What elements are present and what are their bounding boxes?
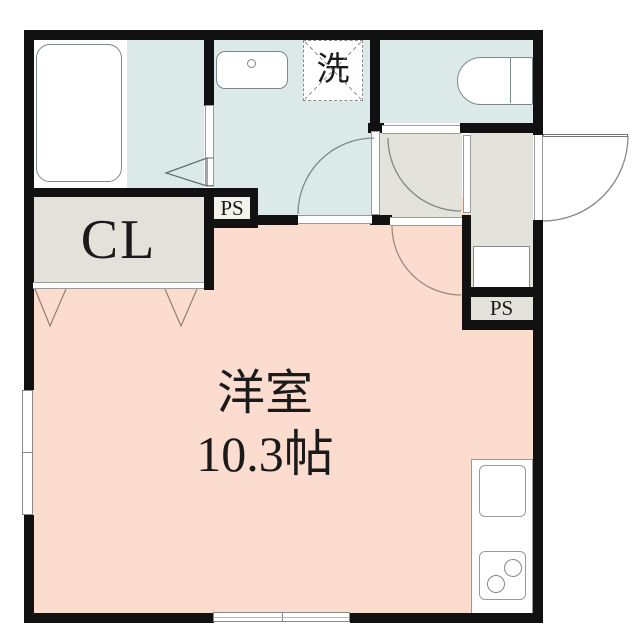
- main-room-door-opening: [390, 217, 462, 226]
- main-room-name: 洋室: [115, 366, 415, 422]
- main-room-size: 10.3帖: [115, 424, 415, 484]
- main-room-size-text: 10.3帖: [196, 429, 334, 479]
- wall-top: [24, 30, 543, 40]
- washing-machine-label: 洗: [317, 54, 350, 87]
- two-burner-stove-icon: [479, 551, 526, 600]
- bathroom-door-leaf: [205, 105, 214, 186]
- washroom-door-leaf: [371, 131, 380, 215]
- bathtub-icon: [36, 44, 122, 182]
- washbasin-icon: [216, 51, 288, 89]
- front-door-opening: [534, 135, 543, 220]
- wall-bottom-right: [350, 613, 543, 623]
- wall-left-upper: [24, 30, 34, 390]
- pipe-space-upper: PS: [214, 197, 250, 219]
- stove-burner-icon: [504, 559, 522, 577]
- closet-door-opening: [33, 282, 204, 289]
- wall-closet-right: [204, 188, 214, 290]
- wall-right-upper: [533, 30, 543, 135]
- toilet-icon: [457, 57, 533, 105]
- entrance-floor: [380, 133, 462, 217]
- window-bottom: [213, 612, 350, 622]
- washroom-door-opening: [298, 215, 372, 224]
- wall-washroom-bottom-junction: [370, 215, 392, 225]
- wall-toilet-bottom-right: [460, 123, 543, 133]
- main-room-name-text: 洋室: [217, 370, 313, 418]
- floor-plan: CL PS 洗 PS: [0, 0, 640, 640]
- window-left-sash-divider: [23, 452, 32, 453]
- pipe-space-lower: PS: [470, 297, 533, 320]
- toilet-door-opening: [382, 125, 460, 134]
- front-door-leaf: [543, 134, 628, 137]
- wall-cabinet-bottom: [462, 287, 543, 297]
- closet-label: CL: [81, 212, 157, 268]
- washing-machine-space: 洗: [303, 40, 363, 101]
- window-bottom-rail-line: [214, 617, 349, 618]
- closet-area: CL: [33, 197, 204, 282]
- wall-left-lower: [24, 515, 34, 623]
- pipe-space-lower-label: PS: [490, 298, 513, 319]
- front-door-arc: [543, 136, 628, 221]
- wall-bottom-left: [24, 613, 214, 623]
- window-left: [22, 390, 33, 515]
- wall-washroom-bottom: [250, 215, 298, 225]
- toilet-door-leaf: [463, 135, 471, 213]
- washbasin-faucet-icon: [247, 59, 256, 68]
- toilet-tank-divider: [510, 58, 511, 103]
- bathroom-floor: [127, 38, 204, 188]
- shoe-cabinet-box: [473, 246, 530, 288]
- wall-entrance-room-divider: [462, 215, 471, 330]
- kitchen-sink-icon: [479, 465, 526, 517]
- wall-bath-washroom: [204, 30, 214, 106]
- wall-ps-lower-bottom: [462, 320, 543, 330]
- wall-washroom-toilet: [370, 30, 380, 130]
- pipe-space-upper-label: PS: [220, 198, 243, 219]
- stove-burner-icon: [487, 575, 505, 593]
- wall-right-lower: [533, 220, 543, 623]
